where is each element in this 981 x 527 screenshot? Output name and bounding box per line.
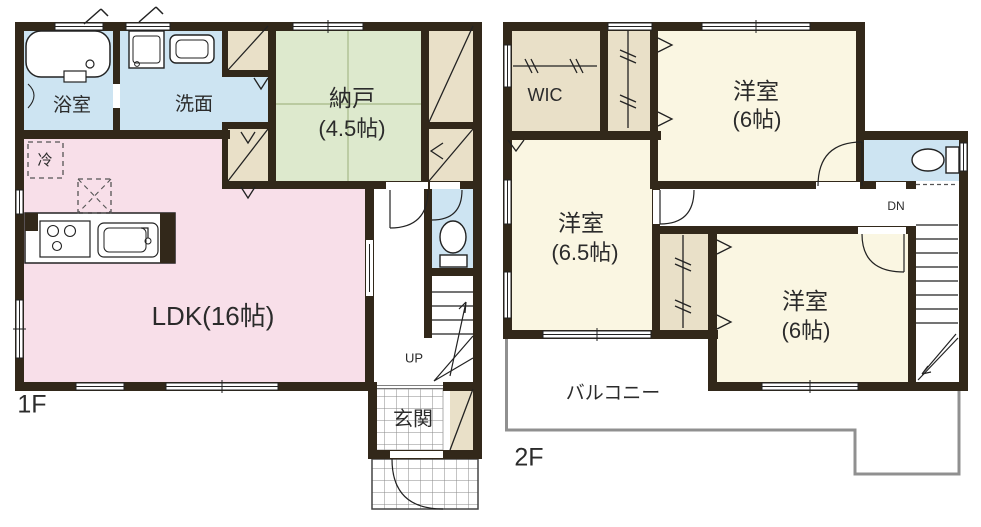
toilet-icon-2f [912,147,959,173]
label-bedroom-ne-size: (6帖) [733,107,782,132]
bathtub-icon [26,31,110,82]
floor-plan-canvas: 浴室 洗面 納戸 (4.5帖) 冷 LDK(16帖) UP 玄関 1F [0,0,981,527]
label-ldk: LDK(16帖) [152,301,275,331]
label-stairs-up: UP [405,350,423,365]
stairs-2f[interactable] [916,225,958,380]
kitchen-counter [25,213,175,263]
kitchen-sink-icon [98,223,158,257]
gas-stove-icon [40,221,90,257]
label-balcony: バルコニー [566,383,661,404]
label-washroom: 洗面 [175,93,213,115]
label-bedroom-w-size: (6.5帖) [551,240,618,265]
room-wic [512,31,600,131]
label-bedroom-se: 洋室 [782,288,828,314]
closet-storage-side [429,26,473,182]
label-bedroom-ne: 洋室 [733,78,779,104]
toilet-icon [440,221,467,267]
label-fridge: 冷 [37,152,52,169]
label-entrance: 玄関 [393,407,433,430]
floor-plan-drawing: 浴室 洗面 納戸 (4.5帖) 冷 LDK(16帖) UP 玄関 1F [0,0,981,527]
entrance-porch [372,459,478,509]
label-stairs-dn: DN [887,199,904,213]
label-floor-1f: 1F [17,391,46,419]
wash-basin-icon [170,35,214,63]
floor-1f: 浴室 洗面 納戸 (4.5帖) 冷 LDK(16帖) UP 玄関 1F [13,7,482,509]
label-floor-2f: 2F [514,444,543,472]
label-bedroom-se-size: (6帖) [782,318,831,343]
label-storage: 納戸 [329,85,375,111]
label-wic: WIC [528,85,563,105]
closet-bedroom-se [660,233,708,330]
closet-hall [608,31,650,131]
floor-2f: WIC 洋室 (6帖) DN 洋室 (6.5帖) 洋室 (6帖) バルコニー 2… [503,20,968,474]
vent-flag-icons [84,7,163,24]
washing-machine-icon [129,31,164,68]
label-storage-size: (4.5帖) [318,116,385,141]
label-bedroom-w: 洋室 [558,210,604,236]
stairs-1f[interactable] [432,292,473,381]
label-bathroom: 浴室 [53,94,91,116]
